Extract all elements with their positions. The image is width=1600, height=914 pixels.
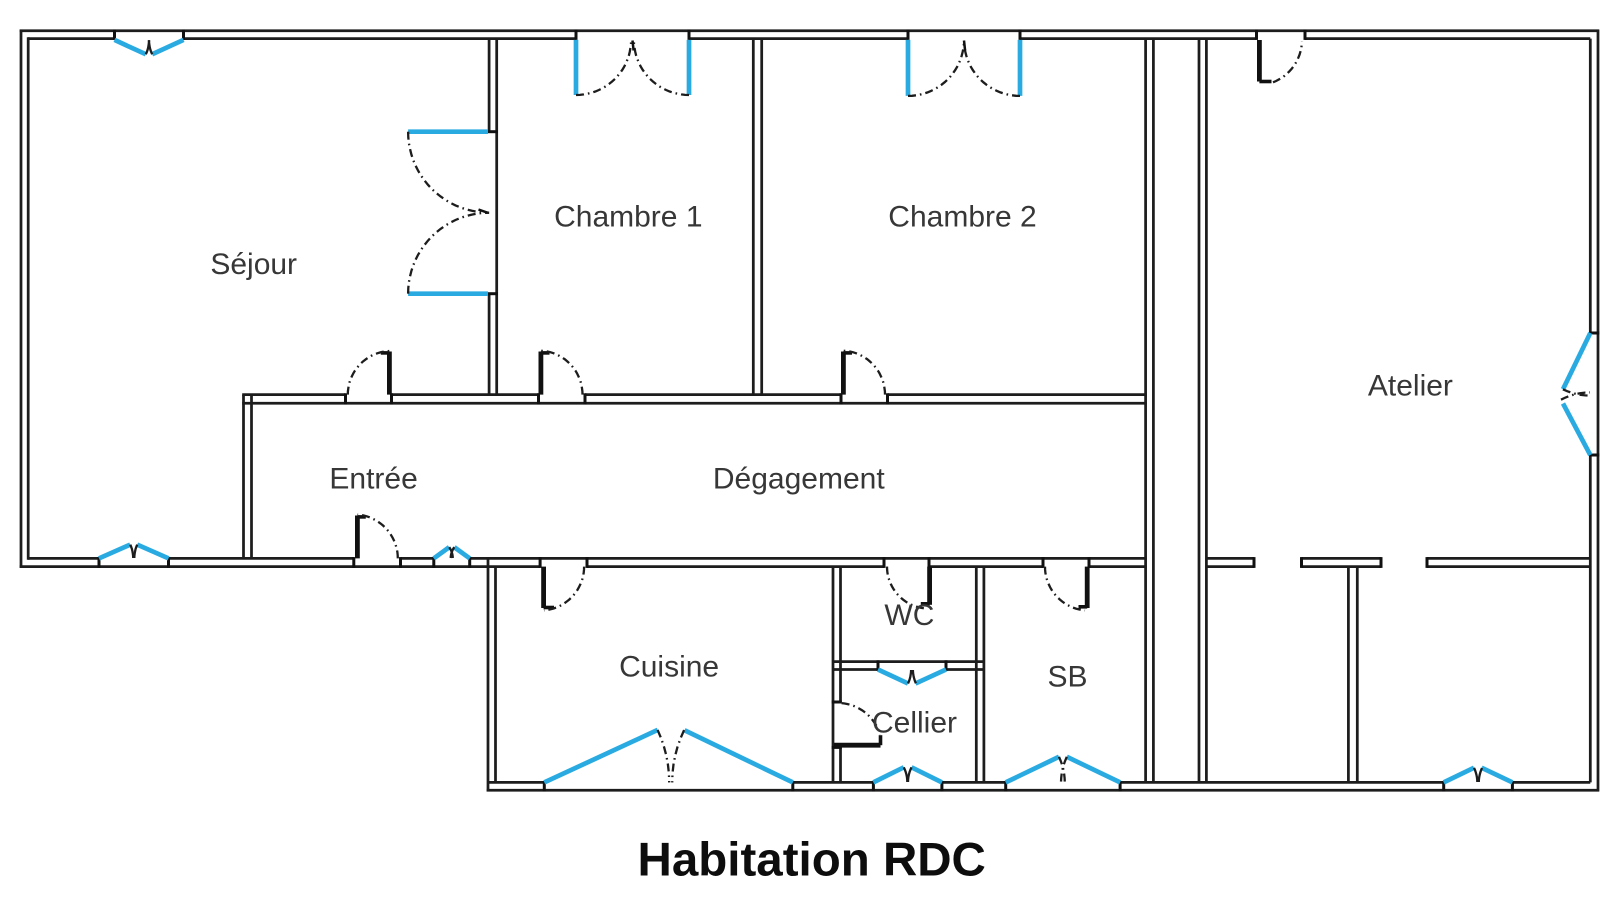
- svg-text:Cellier: Cellier: [872, 707, 957, 740]
- svg-text:Séjour: Séjour: [210, 248, 297, 281]
- svg-text:Dégagement: Dégagement: [713, 463, 885, 496]
- svg-text:Atelier: Atelier: [1368, 370, 1453, 403]
- svg-text:Habitation RDC: Habitation RDC: [638, 834, 986, 887]
- svg-text:Entrée: Entrée: [329, 463, 417, 496]
- svg-text:Chambre 2: Chambre 2: [888, 201, 1036, 234]
- svg-text:SB: SB: [1047, 660, 1087, 693]
- svg-text:WC: WC: [884, 599, 934, 632]
- svg-text:Cuisine: Cuisine: [619, 650, 719, 683]
- svg-text:Chambre 1: Chambre 1: [554, 201, 702, 234]
